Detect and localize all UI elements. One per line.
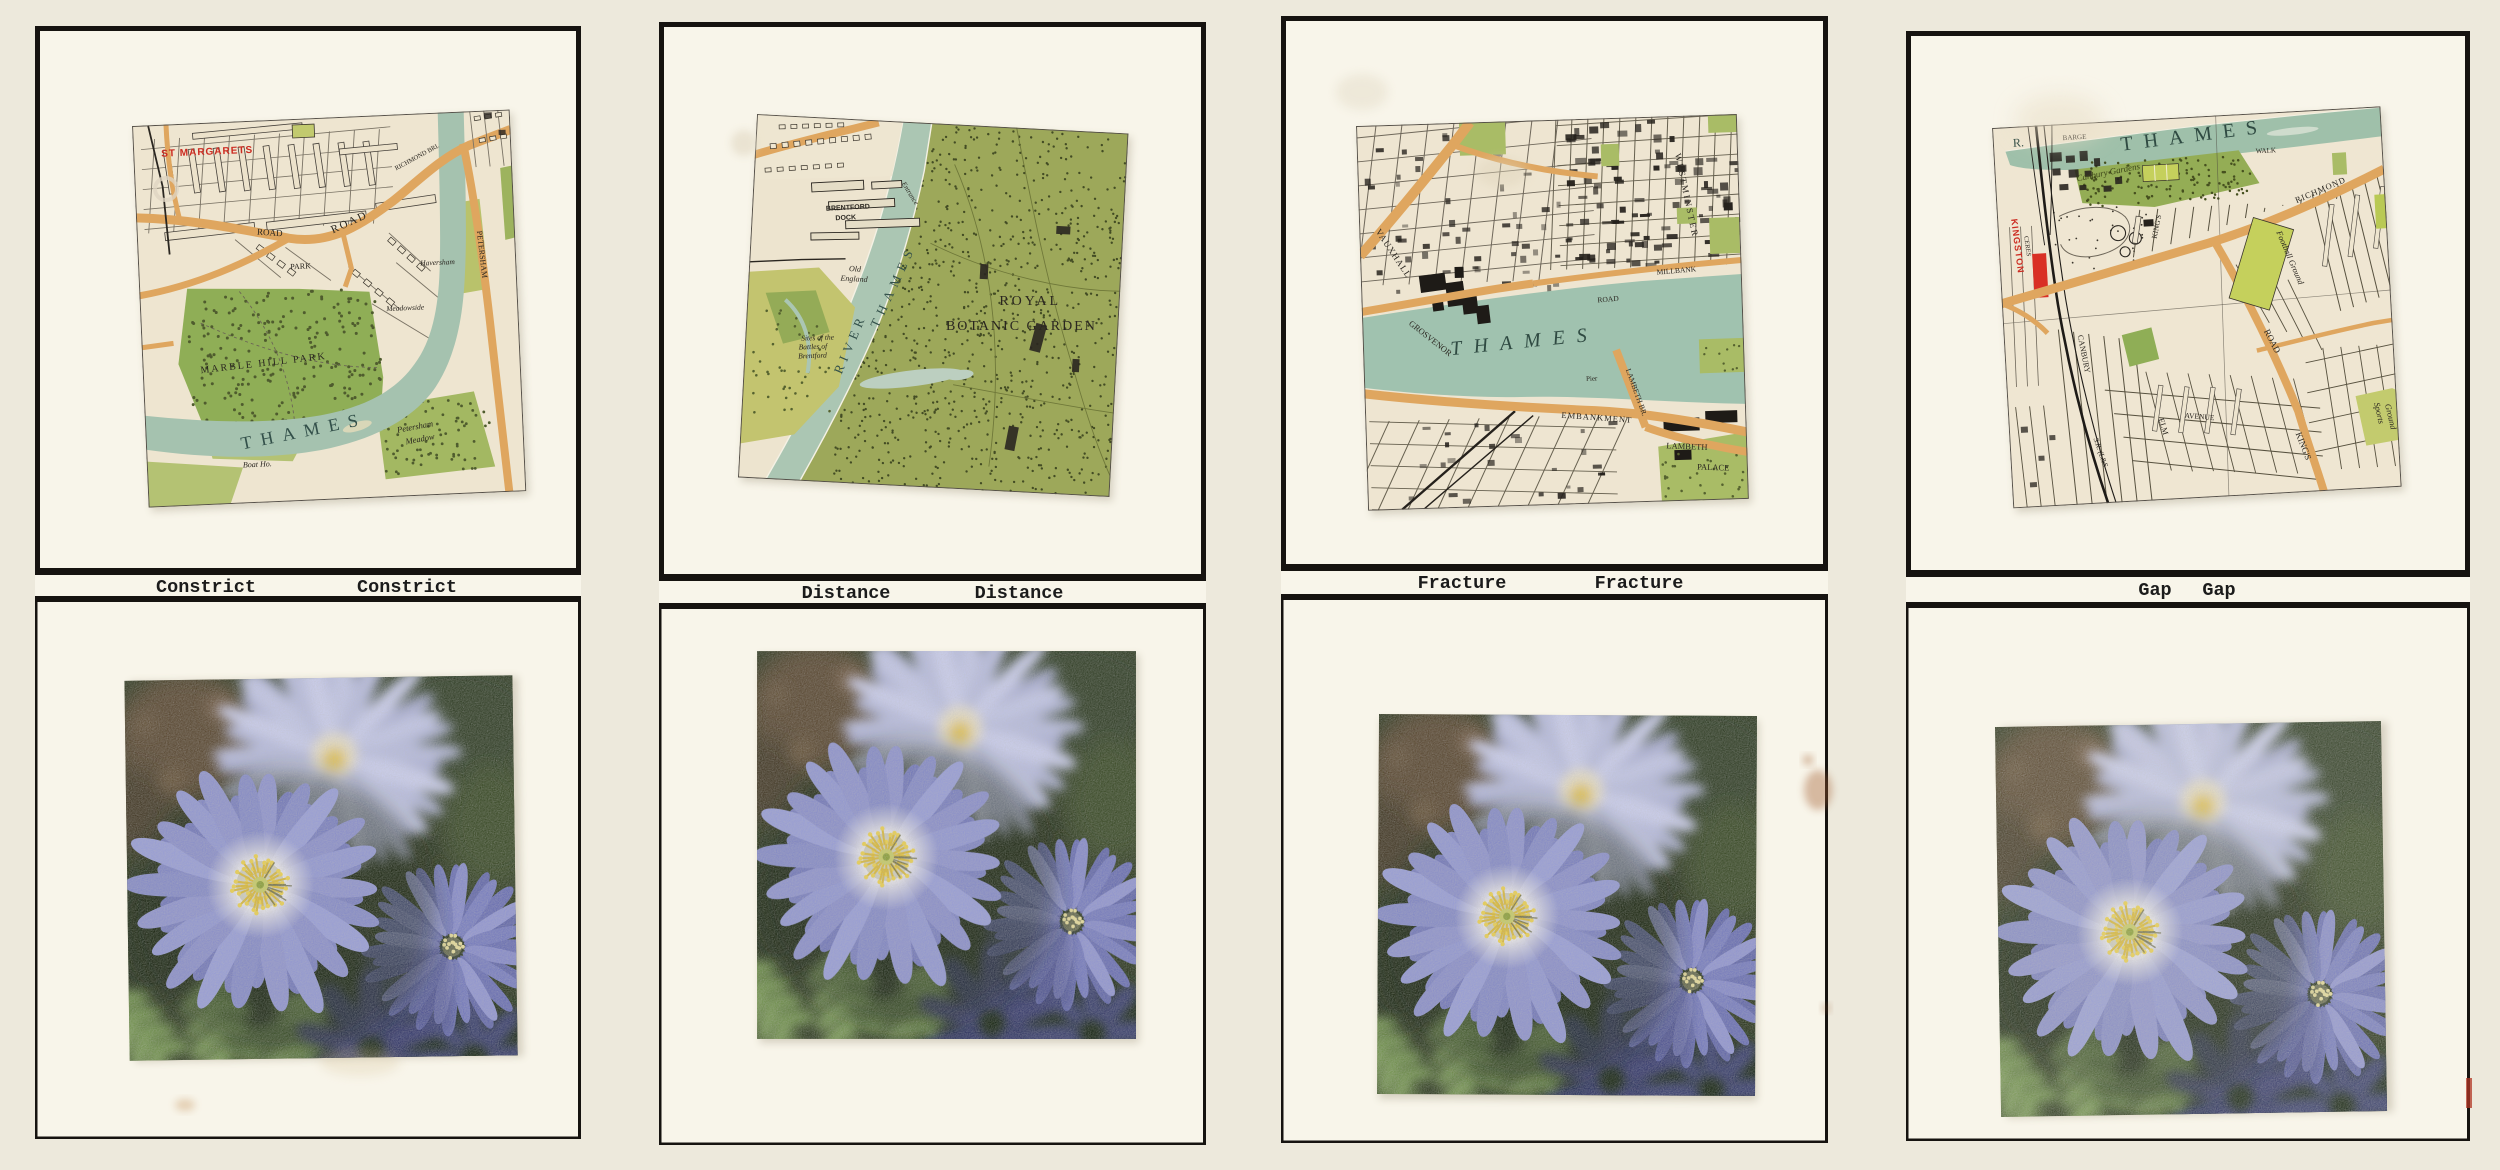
- svg-text:Gap: Gap: [2138, 580, 2171, 601]
- svg-text:England: England: [839, 274, 869, 285]
- svg-text:Gap: Gap: [2202, 580, 2235, 601]
- svg-text:WALK: WALK: [2255, 146, 2276, 155]
- svg-text:R.: R.: [2012, 135, 2024, 150]
- svg-text:Fracture: Fracture: [1418, 573, 1507, 594]
- svg-text:Constrict: Constrict: [156, 577, 256, 598]
- svg-text:Meadowside: Meadowside: [385, 302, 425, 313]
- svg-text:Constrict: Constrict: [357, 577, 457, 598]
- svg-text:Old: Old: [849, 264, 862, 274]
- svg-text:Distance: Distance: [975, 583, 1064, 604]
- svg-text:ROYAL: ROYAL: [999, 294, 1061, 309]
- svg-text:ROAD: ROAD: [1597, 294, 1620, 305]
- svg-text:LAMBETH: LAMBETH: [1666, 440, 1707, 452]
- svg-text:Boat Ho.: Boat Ho.: [243, 459, 272, 469]
- svg-text:PALACE: PALACE: [1697, 461, 1730, 472]
- svg-text:Brentford: Brentford: [798, 350, 827, 360]
- svg-text:BOTANIC GARDEN: BOTANIC GARDEN: [946, 319, 1097, 334]
- svg-text:Haversham: Haversham: [419, 257, 456, 268]
- svg-text:Distance: Distance: [802, 583, 891, 604]
- svg-text:ROAD: ROAD: [257, 227, 284, 239]
- svg-text:Pier: Pier: [1586, 375, 1598, 383]
- svg-text:Fracture: Fracture: [1595, 573, 1684, 594]
- svg-text:DOCK: DOCK: [835, 214, 856, 222]
- svg-text:PARK: PARK: [290, 261, 311, 271]
